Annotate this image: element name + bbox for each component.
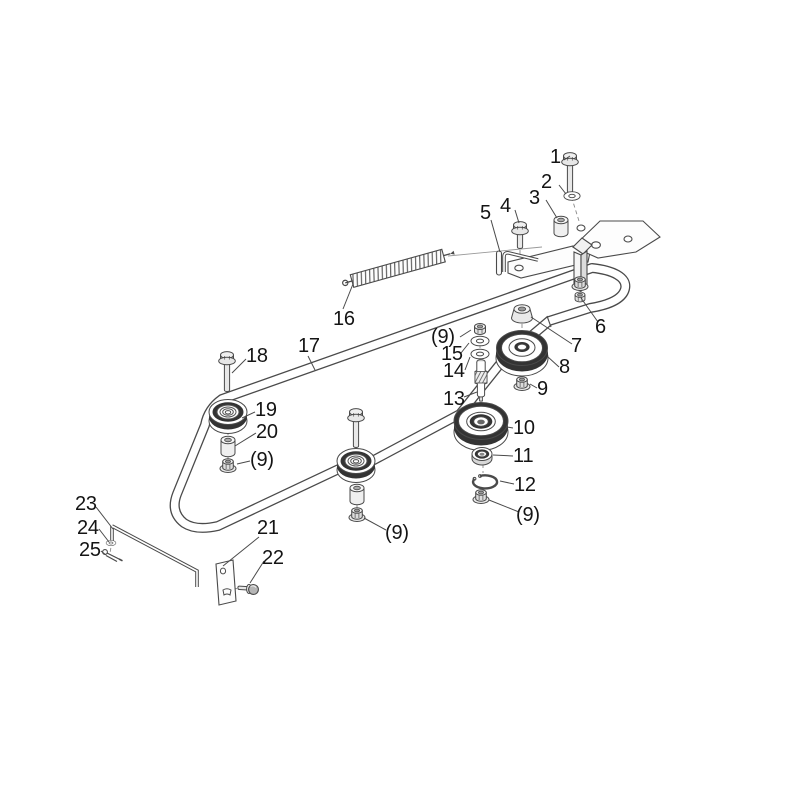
callout-19: 19	[255, 400, 277, 421]
construction-lines	[110, 197, 580, 589]
callout-12: 12	[514, 475, 536, 496]
flat-washer-14	[471, 349, 489, 359]
spacer-3	[554, 216, 568, 237]
callout-5: 5	[480, 203, 491, 224]
callout-23: 23	[75, 494, 97, 515]
flange-nut-9-center	[349, 508, 365, 522]
callout-21: 21	[257, 518, 279, 539]
callout-25: 25	[79, 540, 101, 561]
belt-guide-rod-23	[112, 526, 197, 587]
extension-spring	[341, 246, 456, 289]
spring-tie-line	[448, 247, 542, 256]
flat-washer-15	[471, 336, 489, 346]
bearing-11	[472, 448, 492, 466]
callout-1: 1	[550, 147, 561, 168]
hex-bolt-1	[562, 153, 579, 193]
cotter-pin-25	[103, 550, 123, 562]
callout-16: 16	[333, 309, 355, 330]
callout-17: 17	[298, 336, 320, 357]
flat-washer-24	[106, 540, 116, 545]
callout-11: 11	[513, 446, 533, 467]
callout-9: 9	[537, 379, 548, 400]
pivot-pin-5	[497, 251, 502, 275]
anchor-plate-21	[216, 560, 236, 605]
flat-idler-pulley-8	[496, 331, 548, 377]
callout-7: 7	[571, 336, 582, 357]
callout-9-qty-right-bottom: (9)	[516, 505, 540, 526]
spacer-20	[221, 436, 235, 457]
jam-nuts-6	[572, 277, 588, 302]
parts-diagram: 1 2 3 4 5 6 7 8 9 10 11 12 13 14 15 16 1…	[0, 0, 800, 800]
lock-nut-9-top	[475, 324, 486, 335]
arm-hole	[515, 265, 523, 271]
v-idler-pulley-center	[337, 449, 375, 483]
callout-9-qty-left: (9)	[250, 450, 274, 471]
flange-nut-9-bottom	[473, 490, 489, 504]
callout-9-qty-right-top: (9)	[431, 327, 455, 348]
v-idler-pulley-19	[209, 400, 247, 434]
callout-22: 22	[262, 548, 284, 569]
callout-8: 8	[559, 357, 570, 378]
carriage-bolt-22	[238, 584, 259, 594]
flange-nut-9-left	[220, 459, 236, 473]
bushing-7	[512, 305, 533, 323]
v-belt	[175, 268, 626, 528]
callout-18: 18	[246, 346, 268, 367]
flat-washer-2	[564, 192, 580, 201]
flange-nut-9	[514, 377, 530, 391]
snap-ring-12	[473, 475, 497, 489]
callout-24: 24	[77, 518, 99, 539]
spacer-center	[350, 484, 364, 505]
hex-bolt-4	[512, 222, 529, 249]
callout-10: 10	[513, 418, 535, 439]
callout-6: 6	[595, 317, 606, 338]
callout-3: 3	[529, 188, 540, 209]
callout-13: 13	[443, 389, 465, 410]
hex-bolt-center	[348, 409, 365, 448]
diagram-drawing	[0, 0, 800, 800]
callout-2: 2	[541, 172, 552, 193]
callout-20: 20	[256, 422, 278, 443]
callout-9-qty-center: (9)	[385, 523, 409, 544]
callout-4: 4	[500, 196, 511, 217]
